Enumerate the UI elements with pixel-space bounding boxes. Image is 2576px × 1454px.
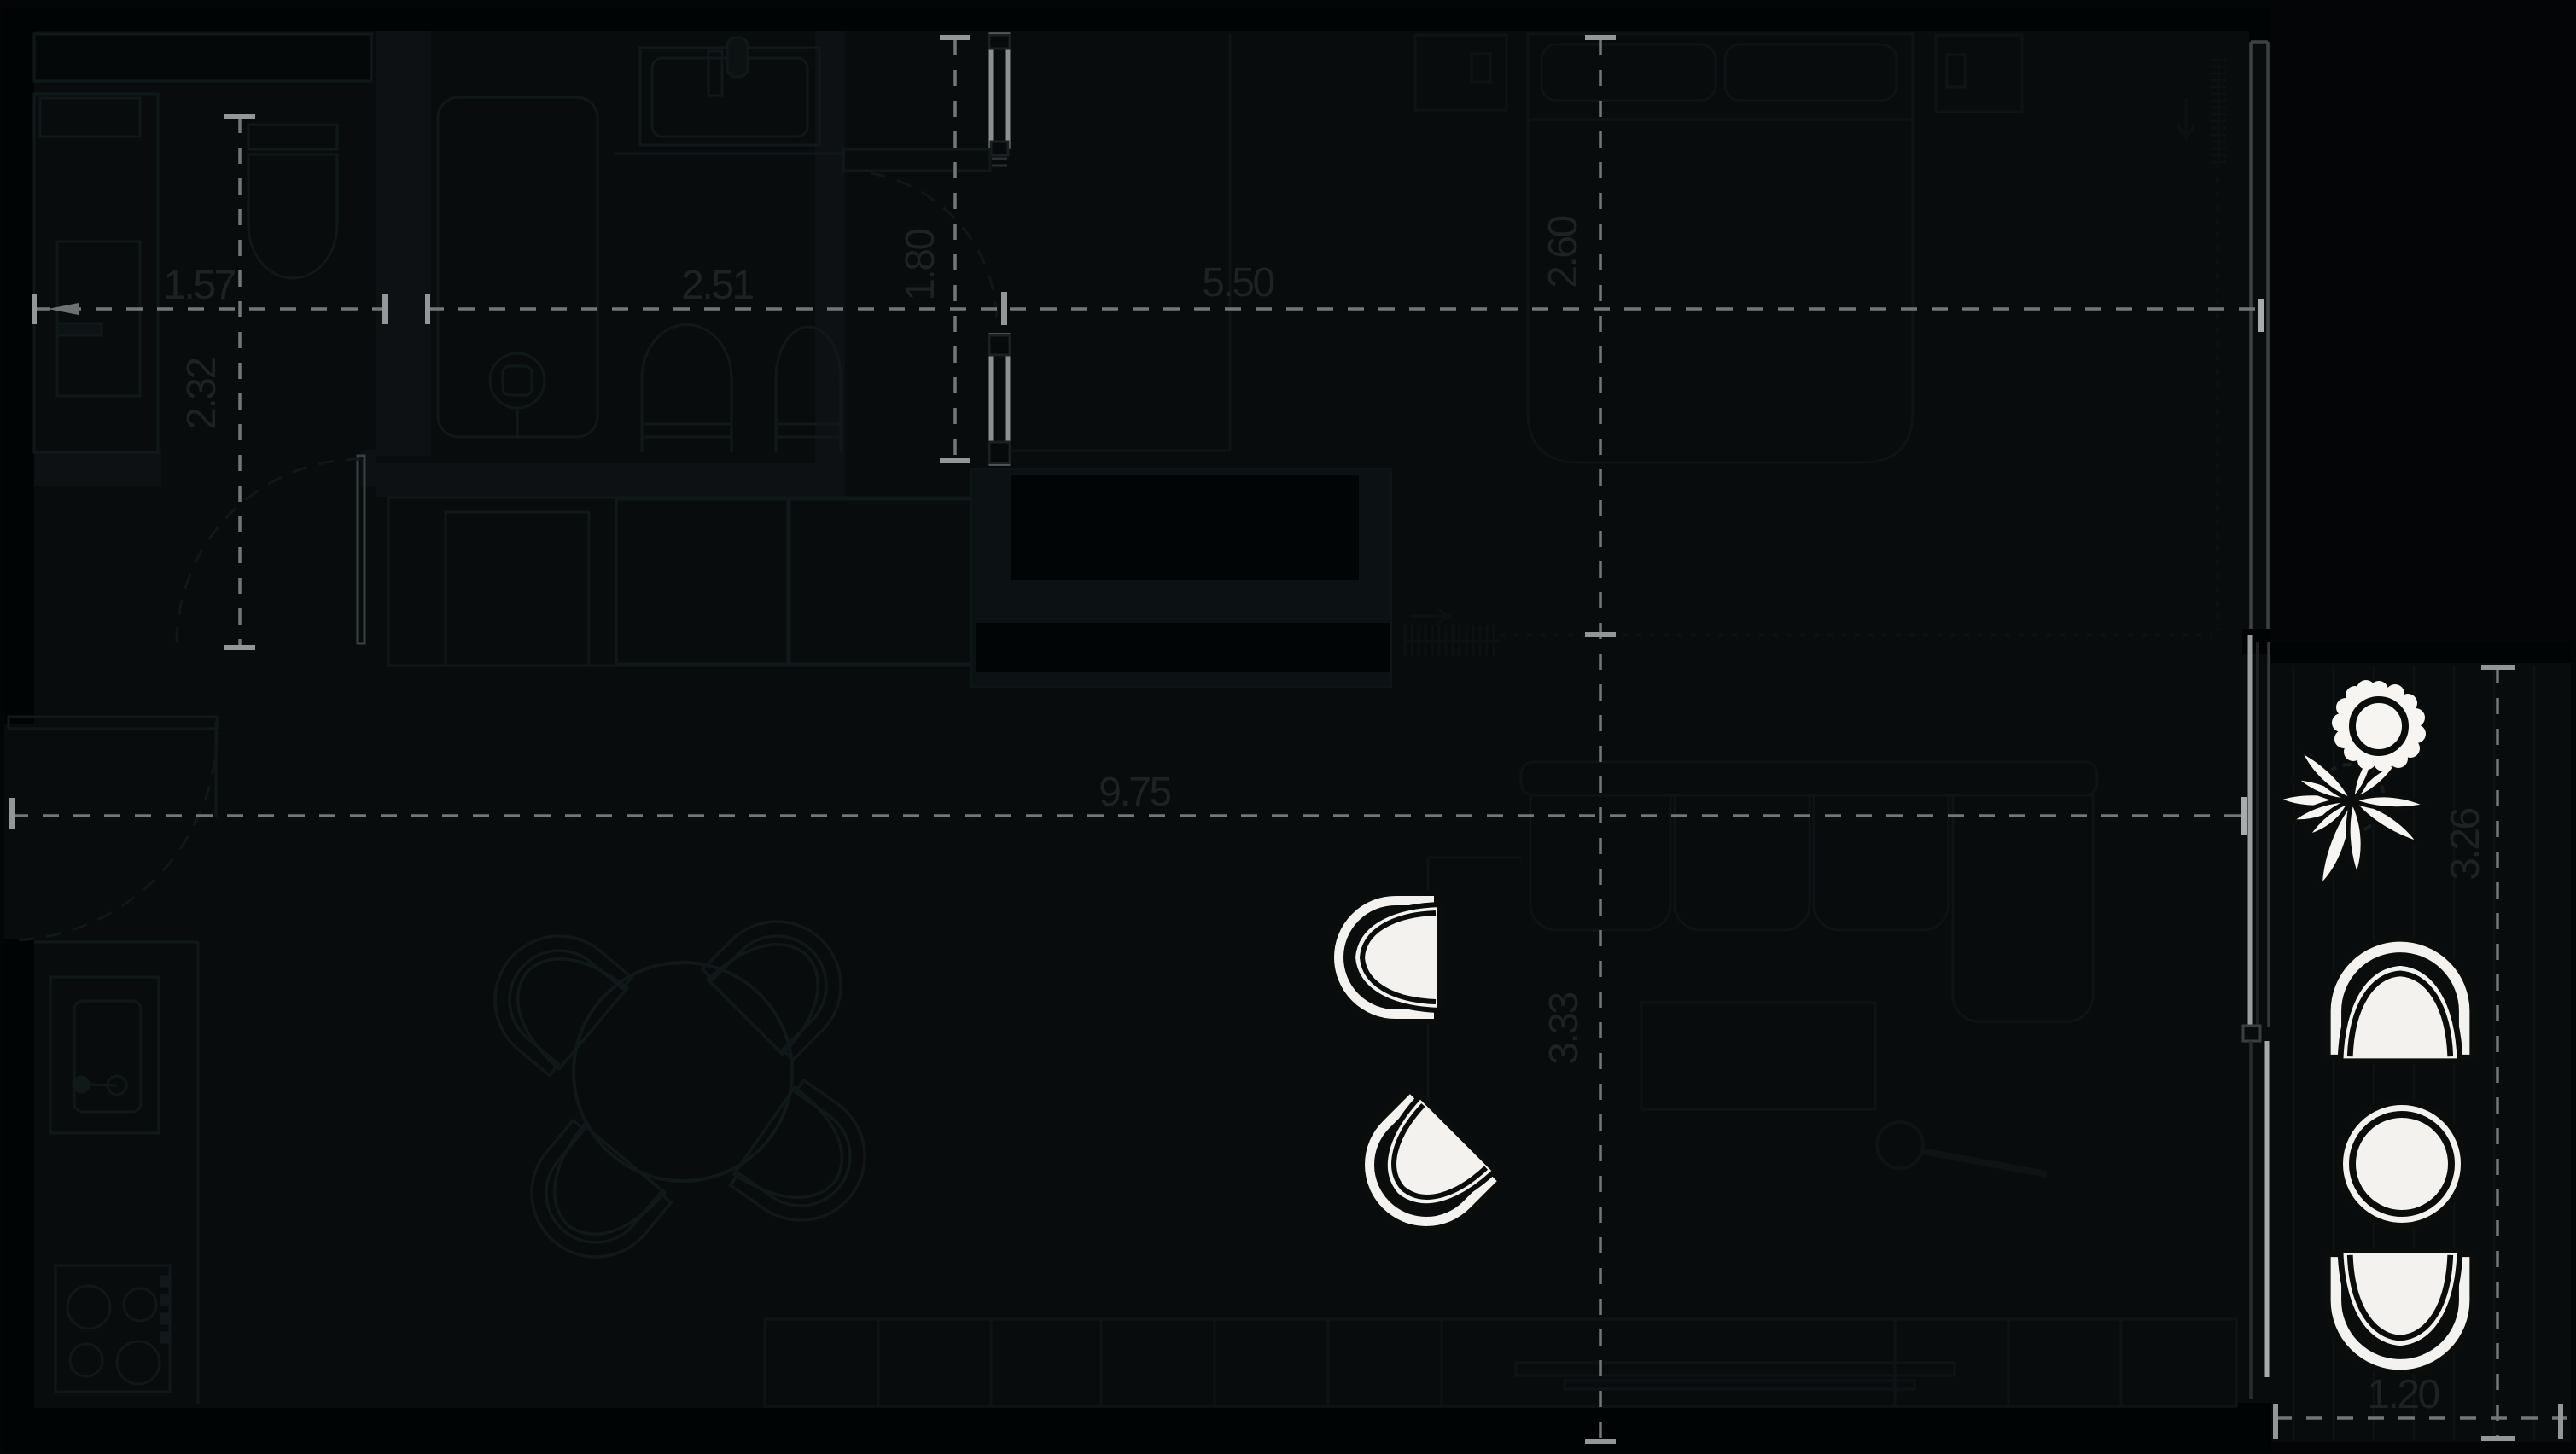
svg-text:9.75: 9.75 [1099,770,1170,815]
svg-text:3.33: 3.33 [1542,992,1587,1064]
svg-text:2.60: 2.60 [1541,216,1586,288]
svg-text:3.26: 3.26 [2443,808,2488,880]
svg-text:1.20: 1.20 [2367,1372,2439,1417]
svg-text:1.80: 1.80 [898,229,943,300]
svg-text:5.50: 5.50 [1202,260,1273,305]
svg-text:2.32: 2.32 [179,358,224,429]
svg-text:2.51: 2.51 [681,263,753,308]
svg-text:1.57: 1.57 [163,263,235,308]
